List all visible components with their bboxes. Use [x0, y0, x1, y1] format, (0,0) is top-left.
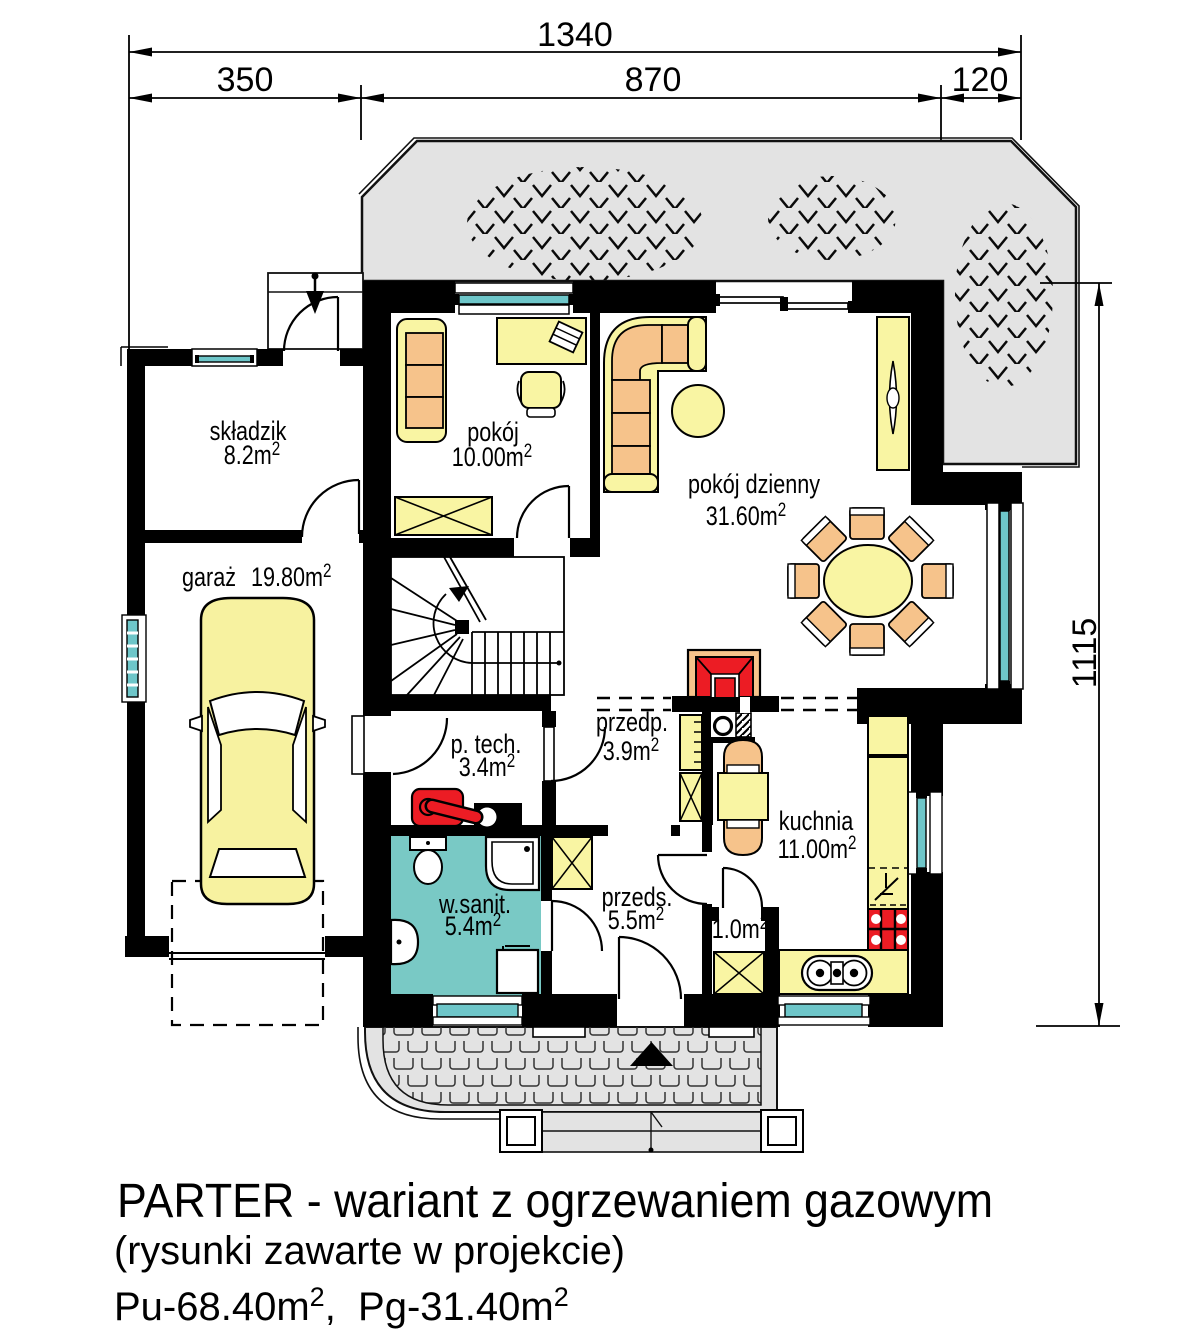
svg-text:kuchnia: kuchnia [779, 807, 854, 837]
svg-text:1340: 1340 [537, 16, 613, 54]
svg-text:120: 120 [952, 61, 1009, 99]
svg-text:5.5m2: 5.5m2 [608, 902, 664, 935]
svg-text:10.00m2: 10.00m2 [452, 439, 532, 472]
svg-text:garaż: garaż [182, 563, 236, 593]
svg-text:pokój dzienny: pokój dzienny [688, 470, 821, 500]
svg-text:3.4m2: 3.4m2 [459, 749, 515, 782]
svg-text:(rysunki zawarte w projekcie): (rysunki zawarte w projekcie) [114, 1229, 625, 1273]
svg-text:1115: 1115 [1066, 618, 1104, 689]
svg-text:350: 350 [217, 61, 274, 99]
svg-text:870: 870 [625, 61, 682, 99]
svg-text:11.00m2: 11.00m2 [778, 831, 857, 864]
svg-text:Pu-68.40m2, Pg-31.40m2: Pu-68.40m2, Pg-31.40m2 [114, 1282, 569, 1329]
svg-text:8.2m2: 8.2m2 [224, 437, 280, 470]
svg-text:PARTER - wariant z ogrzewanie: PARTER - wariant z ogrzewaniem gazowym [117, 1175, 993, 1228]
svg-text:5.4m2: 5.4m2 [445, 908, 501, 941]
svg-text:31.60m2: 31.60m2 [706, 498, 786, 531]
svg-text:3.9m2: 3.9m2 [603, 733, 659, 766]
svg-text:19.80m2: 19.80m2 [251, 559, 331, 592]
svg-text:1.0m2: 1.0m2 [712, 911, 768, 944]
